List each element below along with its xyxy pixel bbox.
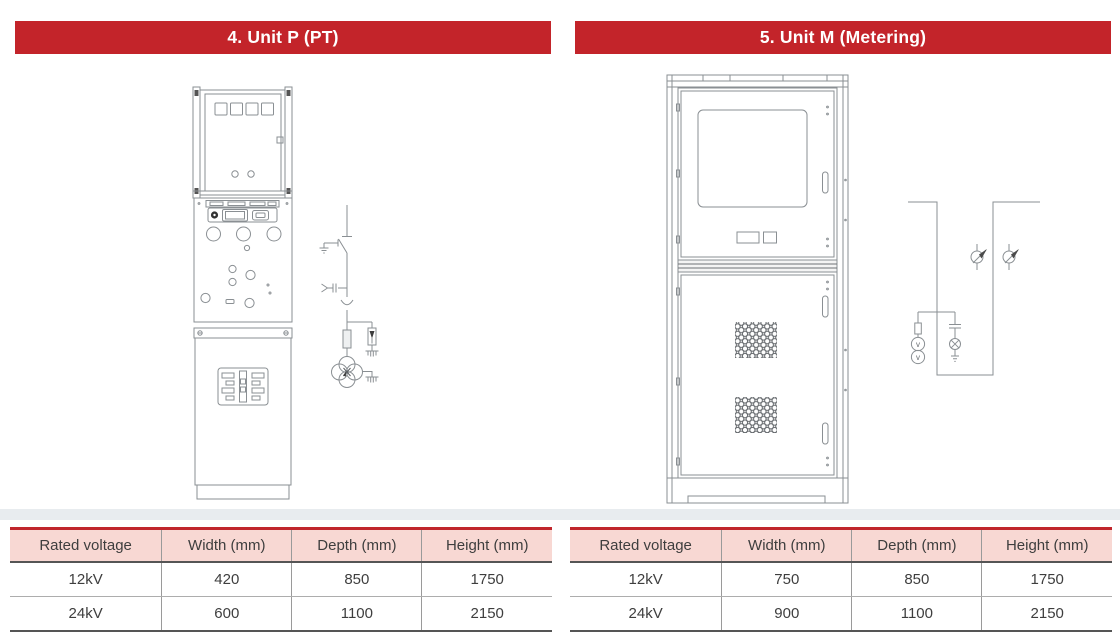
cell-height: 1750 [422, 562, 552, 597]
voltage-indicator-symbol [322, 284, 348, 293]
unit-p-dimensions-table: Rated voltage Width (mm) Depth (mm) Heig… [10, 527, 552, 632]
unit-p-title: 4. Unit P (PT) [227, 27, 338, 47]
indicator-window [231, 103, 243, 115]
cell-rated-voltage: 12kV [10, 562, 162, 597]
col-width: Width (mm) [722, 529, 852, 563]
plinth [688, 496, 825, 503]
lower-top-rail [194, 328, 292, 338]
small-hole [201, 293, 210, 302]
screw-dot [267, 284, 269, 286]
nameplate [737, 232, 759, 243]
vt-winding-label: v [916, 340, 920, 349]
section-divider [678, 260, 837, 272]
vent-grille-upper [735, 322, 777, 358]
earth-symbol [951, 356, 959, 361]
cell-rated-voltage: 24kV [10, 597, 162, 632]
cell-rated-voltage: 24kV [570, 597, 722, 632]
screw-dot [827, 288, 829, 290]
busbar-loop [908, 202, 1040, 375]
lower-door [678, 272, 837, 478]
lower-door [195, 338, 291, 485]
door-latch [277, 137, 283, 143]
screw-dot [827, 113, 829, 115]
vent-slot [268, 202, 276, 206]
cell-depth: 1100 [852, 597, 982, 632]
vent-grille [218, 368, 268, 405]
operation-hole [237, 227, 251, 241]
cell-rated-voltage: 12kV [570, 562, 722, 597]
table-row: 12kV 420 850 1750 [10, 562, 552, 597]
unit-p-drawing [0, 60, 560, 520]
cell-depth: 1100 [292, 597, 422, 632]
screw-dot [286, 203, 288, 205]
current-transformer-symbol [1003, 244, 1019, 270]
connector-port [253, 211, 269, 221]
screw-dot [845, 349, 847, 351]
pt-earth-link [363, 372, 373, 378]
table-row: 12kV 750 850 1750 [570, 562, 1112, 597]
indicator-window [262, 103, 274, 115]
voltage-transformer-symbol: v v [911, 337, 924, 363]
top-rails [667, 81, 848, 87]
disconnector-blade [339, 239, 348, 253]
control-button-center [213, 214, 215, 216]
page-divider-band [0, 509, 1120, 520]
indicator-window [215, 103, 227, 115]
screw-dot [827, 245, 829, 247]
cell-height: 2150 [982, 597, 1112, 632]
cell-width: 900 [722, 597, 852, 632]
screw-dot [827, 281, 829, 283]
capacitor-symbol [949, 312, 961, 339]
table-row: 24kV 600 1100 2150 [10, 597, 552, 632]
arrester-arrow [370, 331, 375, 339]
screw-dot [845, 219, 847, 221]
earth-branch [324, 240, 338, 249]
door-handle [823, 172, 829, 193]
separable-connector-symbol [341, 300, 353, 305]
keyhole-slot [226, 300, 234, 304]
hinge-mark [195, 90, 199, 96]
table-row: 24kV 900 1100 2150 [570, 597, 1112, 632]
earth-symbol [320, 248, 329, 253]
col-rated-voltage: Rated voltage [570, 529, 722, 563]
earth-symbol [366, 377, 379, 383]
door-knob [232, 171, 238, 177]
unit-m-header: 5. Unit M (Metering) [575, 21, 1111, 54]
operation-hole [207, 227, 221, 241]
door-window [698, 110, 807, 207]
cell-height: 1750 [982, 562, 1112, 597]
table-header-row: Rated voltage Width (mm) Depth (mm) Heig… [10, 529, 552, 563]
unit-p-header: 4. Unit P (PT) [15, 21, 551, 54]
top-rail-ticks [703, 76, 827, 81]
cell-depth: 850 [852, 562, 982, 597]
screw-dot [845, 179, 847, 181]
vent-slot [210, 202, 223, 206]
vent-grille-lower [735, 397, 777, 433]
col-height: Height (mm) [422, 529, 552, 563]
display-screen [226, 212, 245, 220]
vent-slot [228, 202, 245, 206]
vent-slot [250, 202, 265, 206]
incoming-line [342, 205, 352, 237]
fuse-symbol [915, 323, 922, 334]
col-height: Height (mm) [982, 529, 1112, 563]
small-hole [229, 265, 236, 272]
cabinet-frame [667, 75, 848, 503]
hinge-mark [287, 90, 291, 96]
screw-dot [845, 389, 847, 391]
indicator-window [246, 103, 258, 115]
small-hole [246, 270, 255, 279]
col-depth: Depth (mm) [852, 529, 982, 563]
col-depth: Depth (mm) [292, 529, 422, 563]
cell-width: 750 [722, 562, 852, 597]
unit-m-schematic: v v [908, 202, 1040, 375]
small-hole [229, 278, 236, 285]
door-handle [823, 296, 829, 317]
current-transformer-symbol [971, 244, 987, 270]
screw-dot [827, 106, 829, 108]
cell-width: 600 [162, 597, 292, 632]
unit-m-drawing: v v [560, 60, 1120, 520]
fuse-symbol [343, 330, 351, 348]
table-header-row: Rated voltage Width (mm) Depth (mm) Heig… [570, 529, 1112, 563]
screw-dot [198, 203, 200, 205]
screw-dot [269, 292, 271, 294]
small-hole [245, 298, 254, 307]
door-knob [248, 171, 254, 177]
lower-door-inner [681, 275, 834, 475]
earth-symbol [366, 351, 379, 357]
cell-height: 2150 [422, 597, 552, 632]
branch-line [347, 310, 372, 322]
vt-winding-label: v [916, 353, 920, 362]
plinth [197, 485, 289, 499]
pt-symbol [332, 357, 363, 388]
col-rated-voltage: Rated voltage [10, 529, 162, 563]
connector-inner [256, 213, 265, 218]
cell-width: 420 [162, 562, 292, 597]
lamp-symbol [950, 339, 961, 350]
cell-depth: 850 [292, 562, 422, 597]
unit-p-schematic [320, 205, 379, 388]
screw-dot [827, 238, 829, 240]
unit-m-title: 5. Unit M (Metering) [760, 27, 926, 47]
unit-m-dimensions-table: Rated voltage Width (mm) Depth (mm) Heig… [570, 527, 1112, 632]
small-hole [244, 245, 249, 250]
cabinet-right-post [285, 87, 292, 198]
operation-hole [267, 227, 281, 241]
cabinet-left-post [193, 87, 200, 198]
unit-m-cabinet-drawing [667, 75, 848, 503]
nameplate-small [764, 232, 777, 243]
door-handle [823, 423, 829, 444]
screw-dot [827, 464, 829, 466]
screw-dot [827, 457, 829, 459]
col-width: Width (mm) [162, 529, 292, 563]
upper-door [678, 88, 837, 260]
unit-p-cabinet-drawing [193, 87, 292, 499]
